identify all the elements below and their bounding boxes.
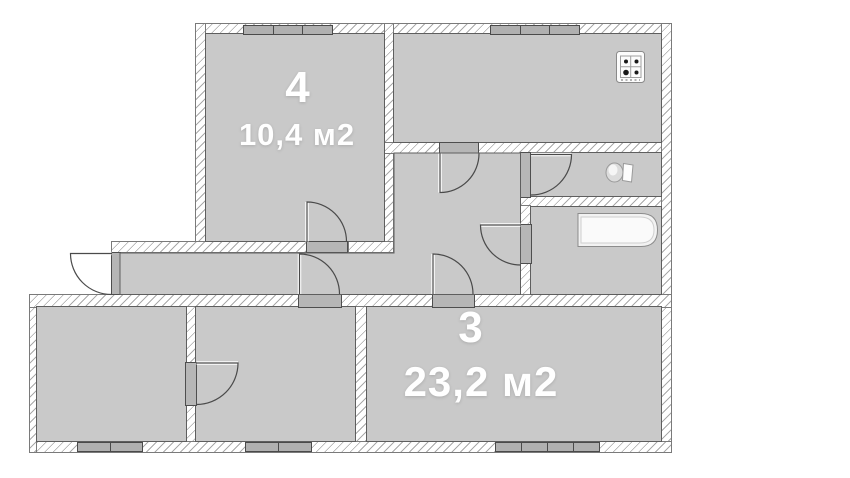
toilet-icon — [606, 163, 633, 182]
door-inner-rooms — [197, 363, 239, 405]
door-room4 — [307, 202, 347, 242]
bathtub-icon — [578, 214, 658, 247]
room3-number: 3 — [458, 303, 483, 353]
room4-area: 10,4 м2 — [239, 117, 355, 153]
room3-area: 23,2 м2 — [404, 358, 559, 406]
stove-icon — [617, 52, 645, 83]
floor-plan: 4 10,4 м2 3 23,2 м2 — [0, 0, 850, 478]
plan-overlay — [0, 0, 850, 478]
door-wc — [531, 155, 572, 196]
hallway — [120, 153, 521, 295]
room4-number: 4 — [285, 63, 310, 113]
entry-door — [71, 254, 112, 295]
